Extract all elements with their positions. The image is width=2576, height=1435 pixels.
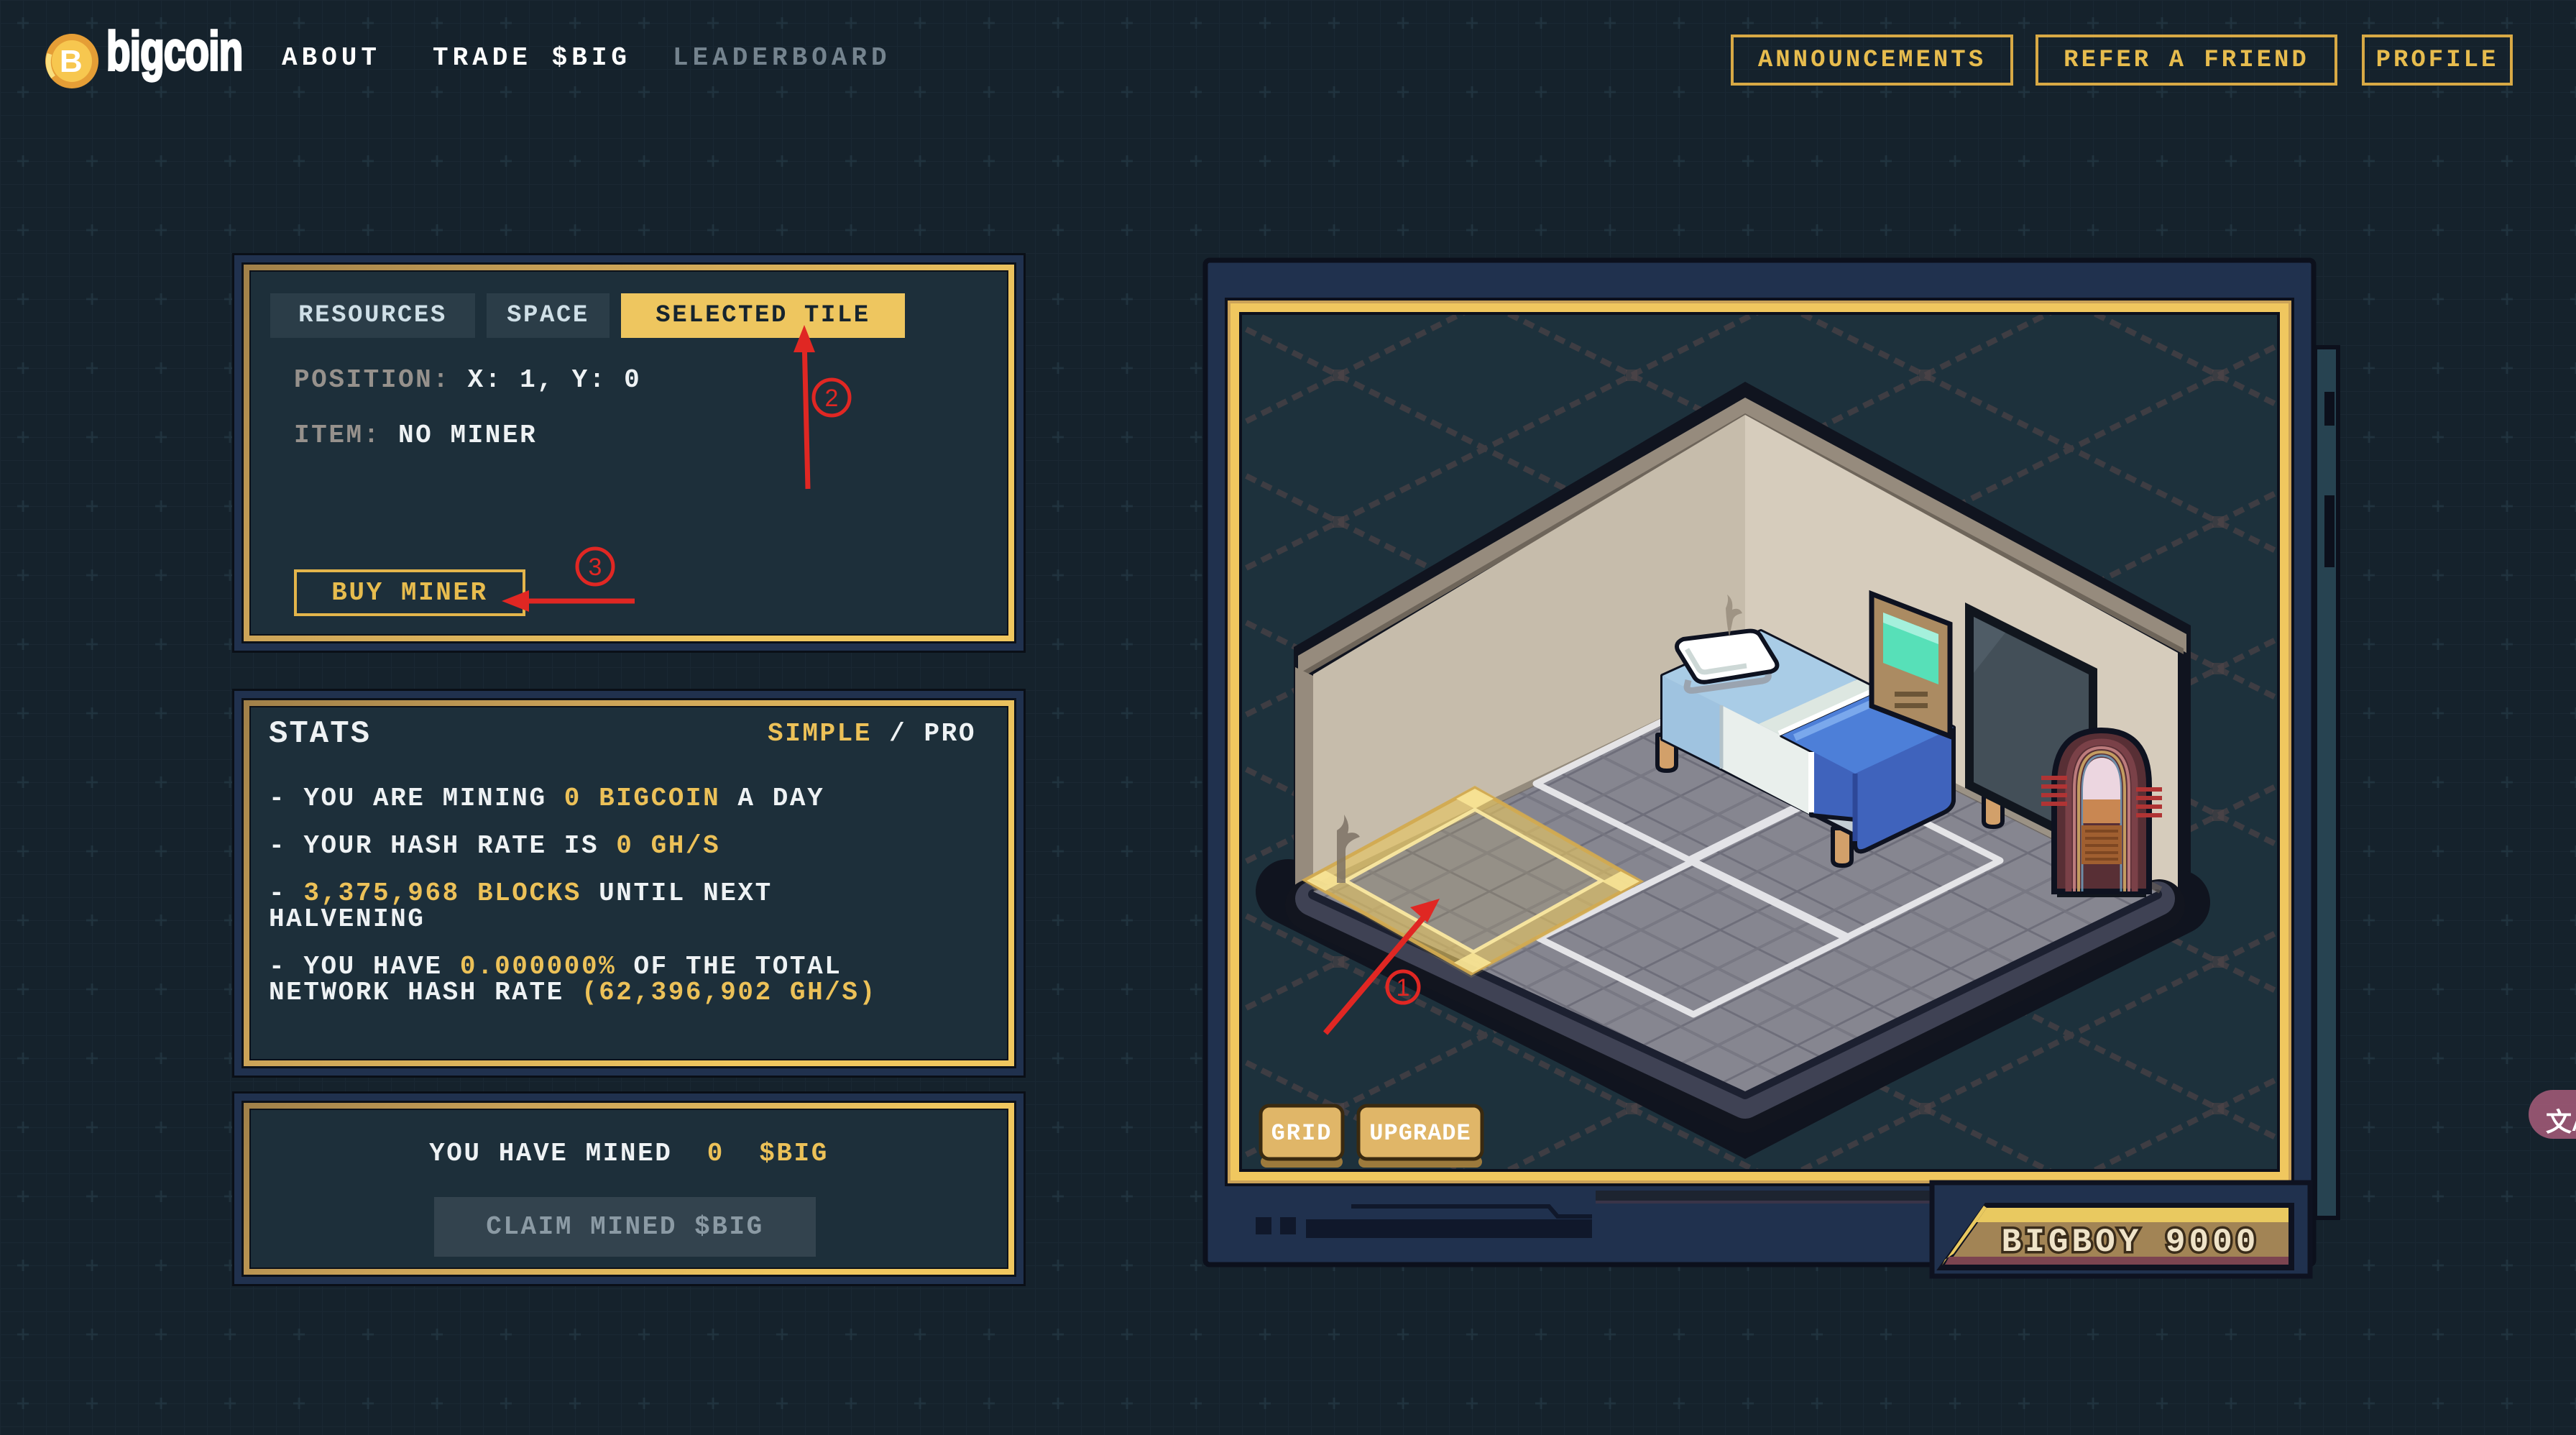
svg-text:B: B (60, 44, 84, 79)
